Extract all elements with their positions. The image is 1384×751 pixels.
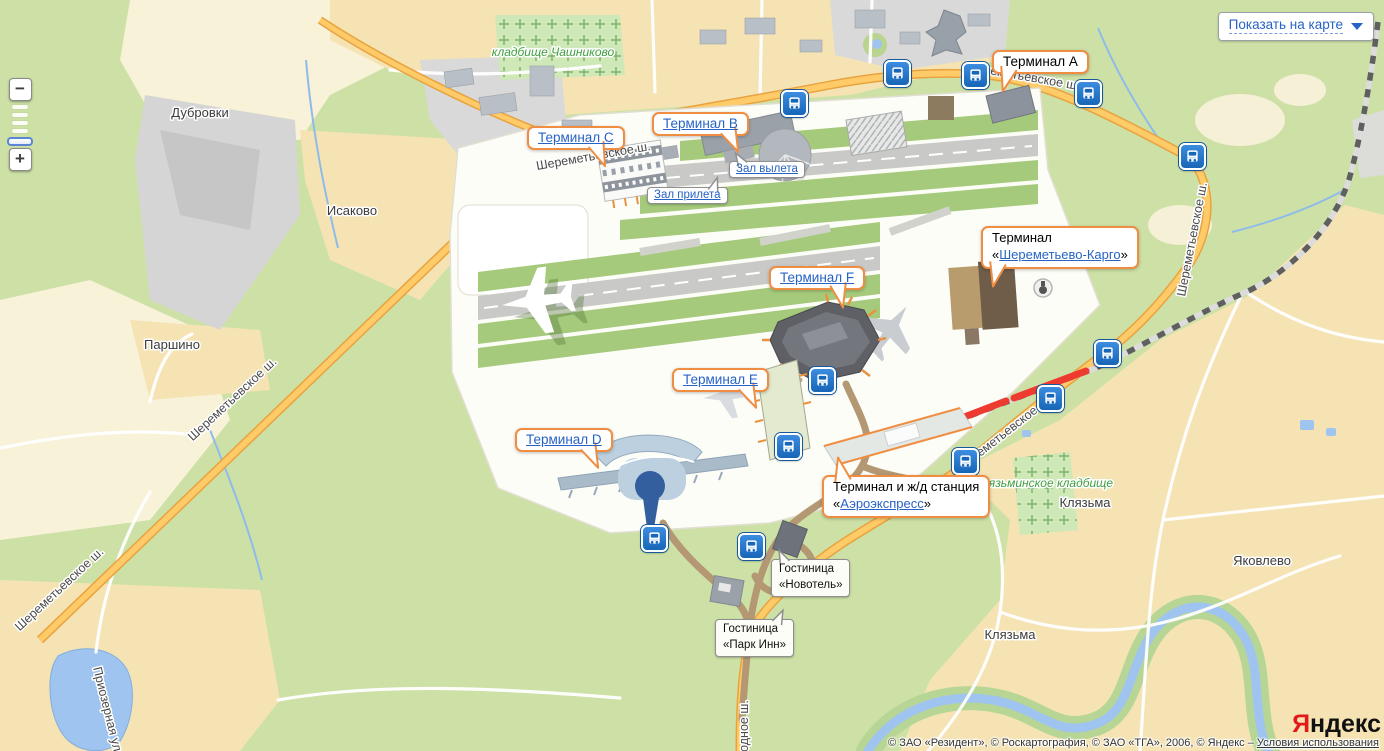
bus-stop-icon[interactable]	[809, 367, 836, 394]
bus-stop-icon[interactable]	[641, 525, 668, 552]
terminal-c-callout[interactable]: Терминал C	[527, 126, 625, 150]
park-inn-line1: Гостиница	[723, 622, 786, 638]
chevron-down-icon	[1351, 23, 1363, 30]
terminal-b-link[interactable]: Терминал B	[663, 116, 738, 131]
terminal-a-label: Терминал A	[1003, 54, 1078, 69]
terminal-c-link[interactable]: Терминал C	[538, 130, 614, 145]
novotel-line1: Гостиница	[779, 562, 842, 578]
place-label-klyazminskoye-cemetery: Клязьминское кладбище	[975, 476, 1113, 490]
bus-stop-icon[interactable]	[738, 533, 765, 560]
zoom-out-button[interactable]: −	[9, 78, 32, 101]
cargo-line2: «Шереметьево-Карго»	[992, 247, 1128, 264]
terms-of-use-link[interactable]: Условия использования	[1257, 737, 1379, 749]
park-inn-building	[710, 576, 744, 607]
aeroexpress-line1: Терминал и ж/д станция	[833, 479, 979, 496]
bus-stop-icon[interactable]	[962, 62, 989, 89]
zoom-control: − +	[7, 78, 33, 171]
copyright: © ЗАО «Резидент», © Роскартография, © ЗА…	[888, 737, 1379, 749]
bus-stop-icon[interactable]	[1179, 143, 1206, 170]
bus-stop-icon[interactable]	[1094, 340, 1121, 367]
place-label-isakovo: Исаково	[327, 203, 377, 218]
aeroexpress-line2: «Аэроэкспресс»	[833, 496, 979, 513]
terminal-e-link[interactable]: Терминал E	[683, 372, 758, 387]
place-label-dubrovki: Дубровки	[171, 105, 229, 120]
zoom-in-button[interactable]: +	[9, 148, 32, 171]
arrival-hall-label[interactable]: Зал прилета	[647, 187, 728, 204]
compass-icon	[1034, 279, 1052, 297]
departure-hall-label[interactable]: Зал вылета	[729, 161, 805, 178]
zoom-slider-handle[interactable]	[7, 137, 33, 146]
terminal-e-callout[interactable]: Терминал E	[672, 368, 769, 392]
departure-hall-link[interactable]: Зал вылета	[736, 163, 798, 175]
cemetery-klyazminskoye	[1013, 452, 1078, 535]
cargo-link[interactable]: Шереметьево-Карго	[999, 247, 1120, 262]
place-label-klyazma-north: Клязьма	[1059, 495, 1111, 510]
road-label-mezhdunarodnoye: Международное ш.	[737, 700, 751, 751]
place-label-chashnikovo-cemetery: кладбище Чашниково	[492, 45, 615, 59]
terminal-f-callout[interactable]: Терминал F	[769, 266, 865, 290]
bus-stop-icon[interactable]	[1037, 385, 1064, 412]
place-label-parshino: Паршино	[144, 337, 200, 352]
yandex-logo: Яндекс	[1292, 712, 1381, 737]
place-label-klyazma-south: Клязьма	[984, 627, 1036, 642]
cargo-terminal-callout[interactable]: Терминал «Шереметьево-Карго»	[981, 226, 1139, 269]
zoom-tick	[12, 129, 28, 133]
bus-stop-icon[interactable]	[775, 433, 802, 460]
novotel-line2: «Новотель»	[779, 578, 842, 594]
cargo-line1: Терминал	[992, 230, 1128, 247]
novotel-label: Гостиница «Новотель»	[771, 559, 850, 597]
bus-stop-icon[interactable]	[884, 60, 911, 87]
arrival-hall-link[interactable]: Зал прилета	[654, 189, 721, 201]
zoom-tick	[12, 105, 28, 109]
bus-stop-icon[interactable]	[952, 448, 979, 475]
zoom-tick	[12, 121, 28, 125]
terminal-d-callout[interactable]: Терминал D	[515, 428, 613, 452]
zoom-tick	[12, 113, 28, 117]
place-label-yakovlevo: Яковлево	[1233, 553, 1291, 568]
park-inn-label: Гостиница «Парк Инн»	[715, 619, 794, 657]
map-viewport: Шереметьевское ш. Шереметьевское ш. Шере…	[0, 0, 1384, 751]
terminal-b-callout[interactable]: Терминал B	[652, 112, 749, 136]
show-on-map-label[interactable]: Показать на карте	[1229, 18, 1343, 34]
aeroexpress-callout[interactable]: Терминал и ж/д станция «Аэроэкспресс»	[822, 475, 990, 518]
cargo-small-building	[928, 96, 954, 120]
bus-stop-icon[interactable]	[1075, 80, 1102, 107]
terminal-a-callout[interactable]: Терминал A	[992, 50, 1089, 74]
park-inn-line2: «Парк Инн»	[723, 638, 786, 654]
bus-stop-icon[interactable]	[781, 90, 808, 117]
show-on-map-button[interactable]: Показать на карте	[1218, 12, 1374, 41]
terminal-d-link[interactable]: Терминал D	[526, 432, 602, 447]
aeroexpress-link[interactable]: Аэроэкспресс	[840, 496, 924, 511]
terminal-f-link[interactable]: Терминал F	[780, 270, 854, 285]
